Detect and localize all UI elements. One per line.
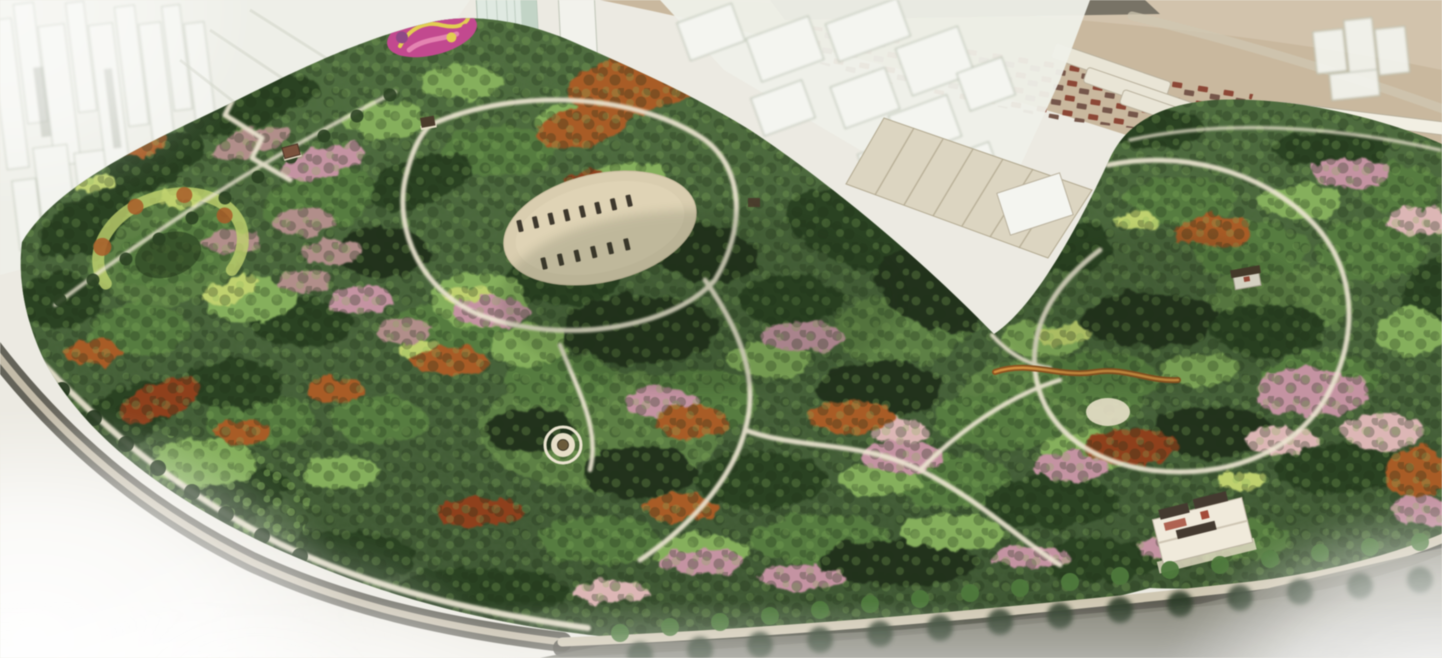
park-aerial-rendering <box>0 0 1442 658</box>
screenshot-canvas <box>0 0 1442 658</box>
pond-plaza <box>1086 398 1130 426</box>
